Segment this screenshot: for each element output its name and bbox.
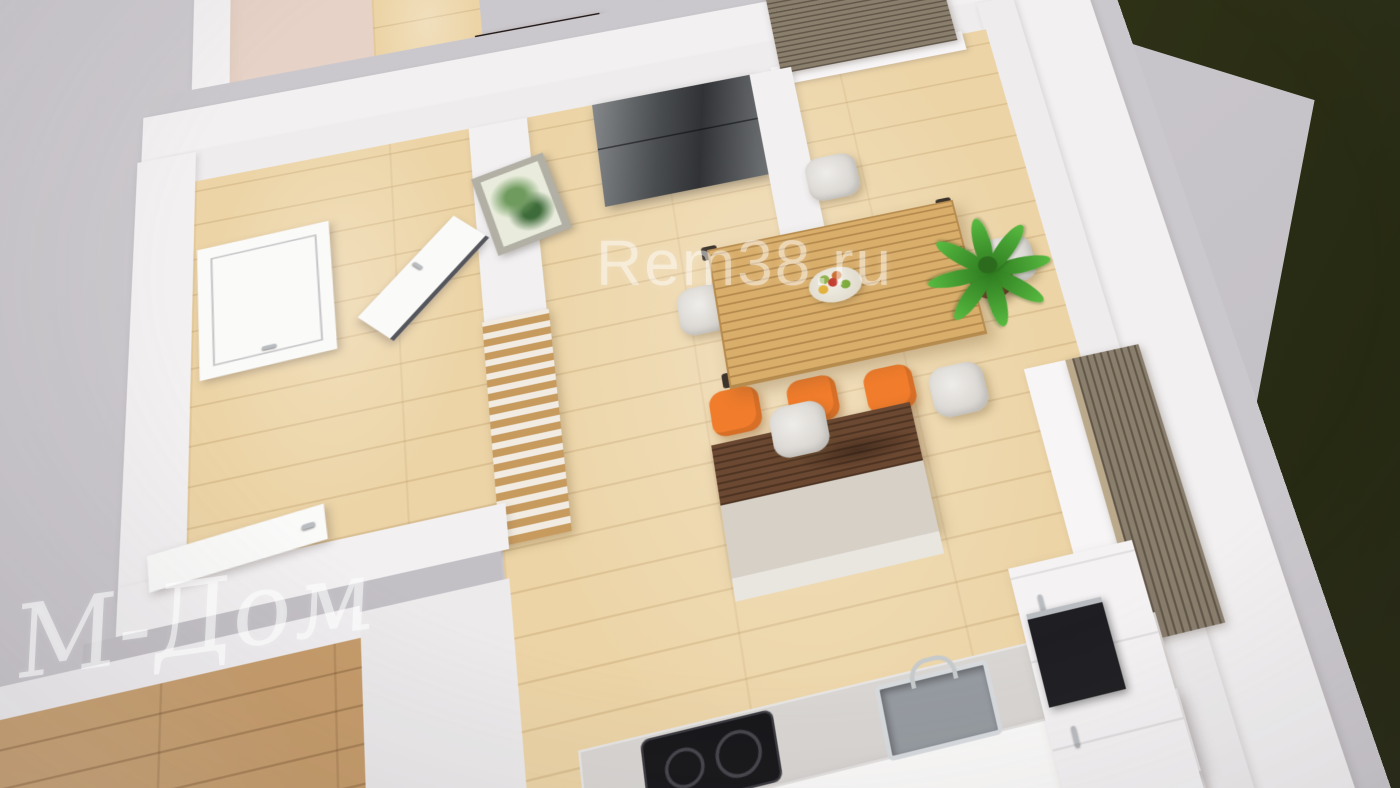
apartment-render: Rem38.ru М-Дом	[0, 0, 1400, 788]
cabinet-handle-icon	[1070, 726, 1080, 748]
left-exterior-wall	[118, 152, 196, 597]
interior-door-handle-icon	[412, 262, 423, 270]
wardrobe-handle-icon	[262, 343, 277, 350]
watermark-center: Rem38.ru	[596, 226, 893, 300]
white-door-handle-icon	[301, 521, 315, 530]
